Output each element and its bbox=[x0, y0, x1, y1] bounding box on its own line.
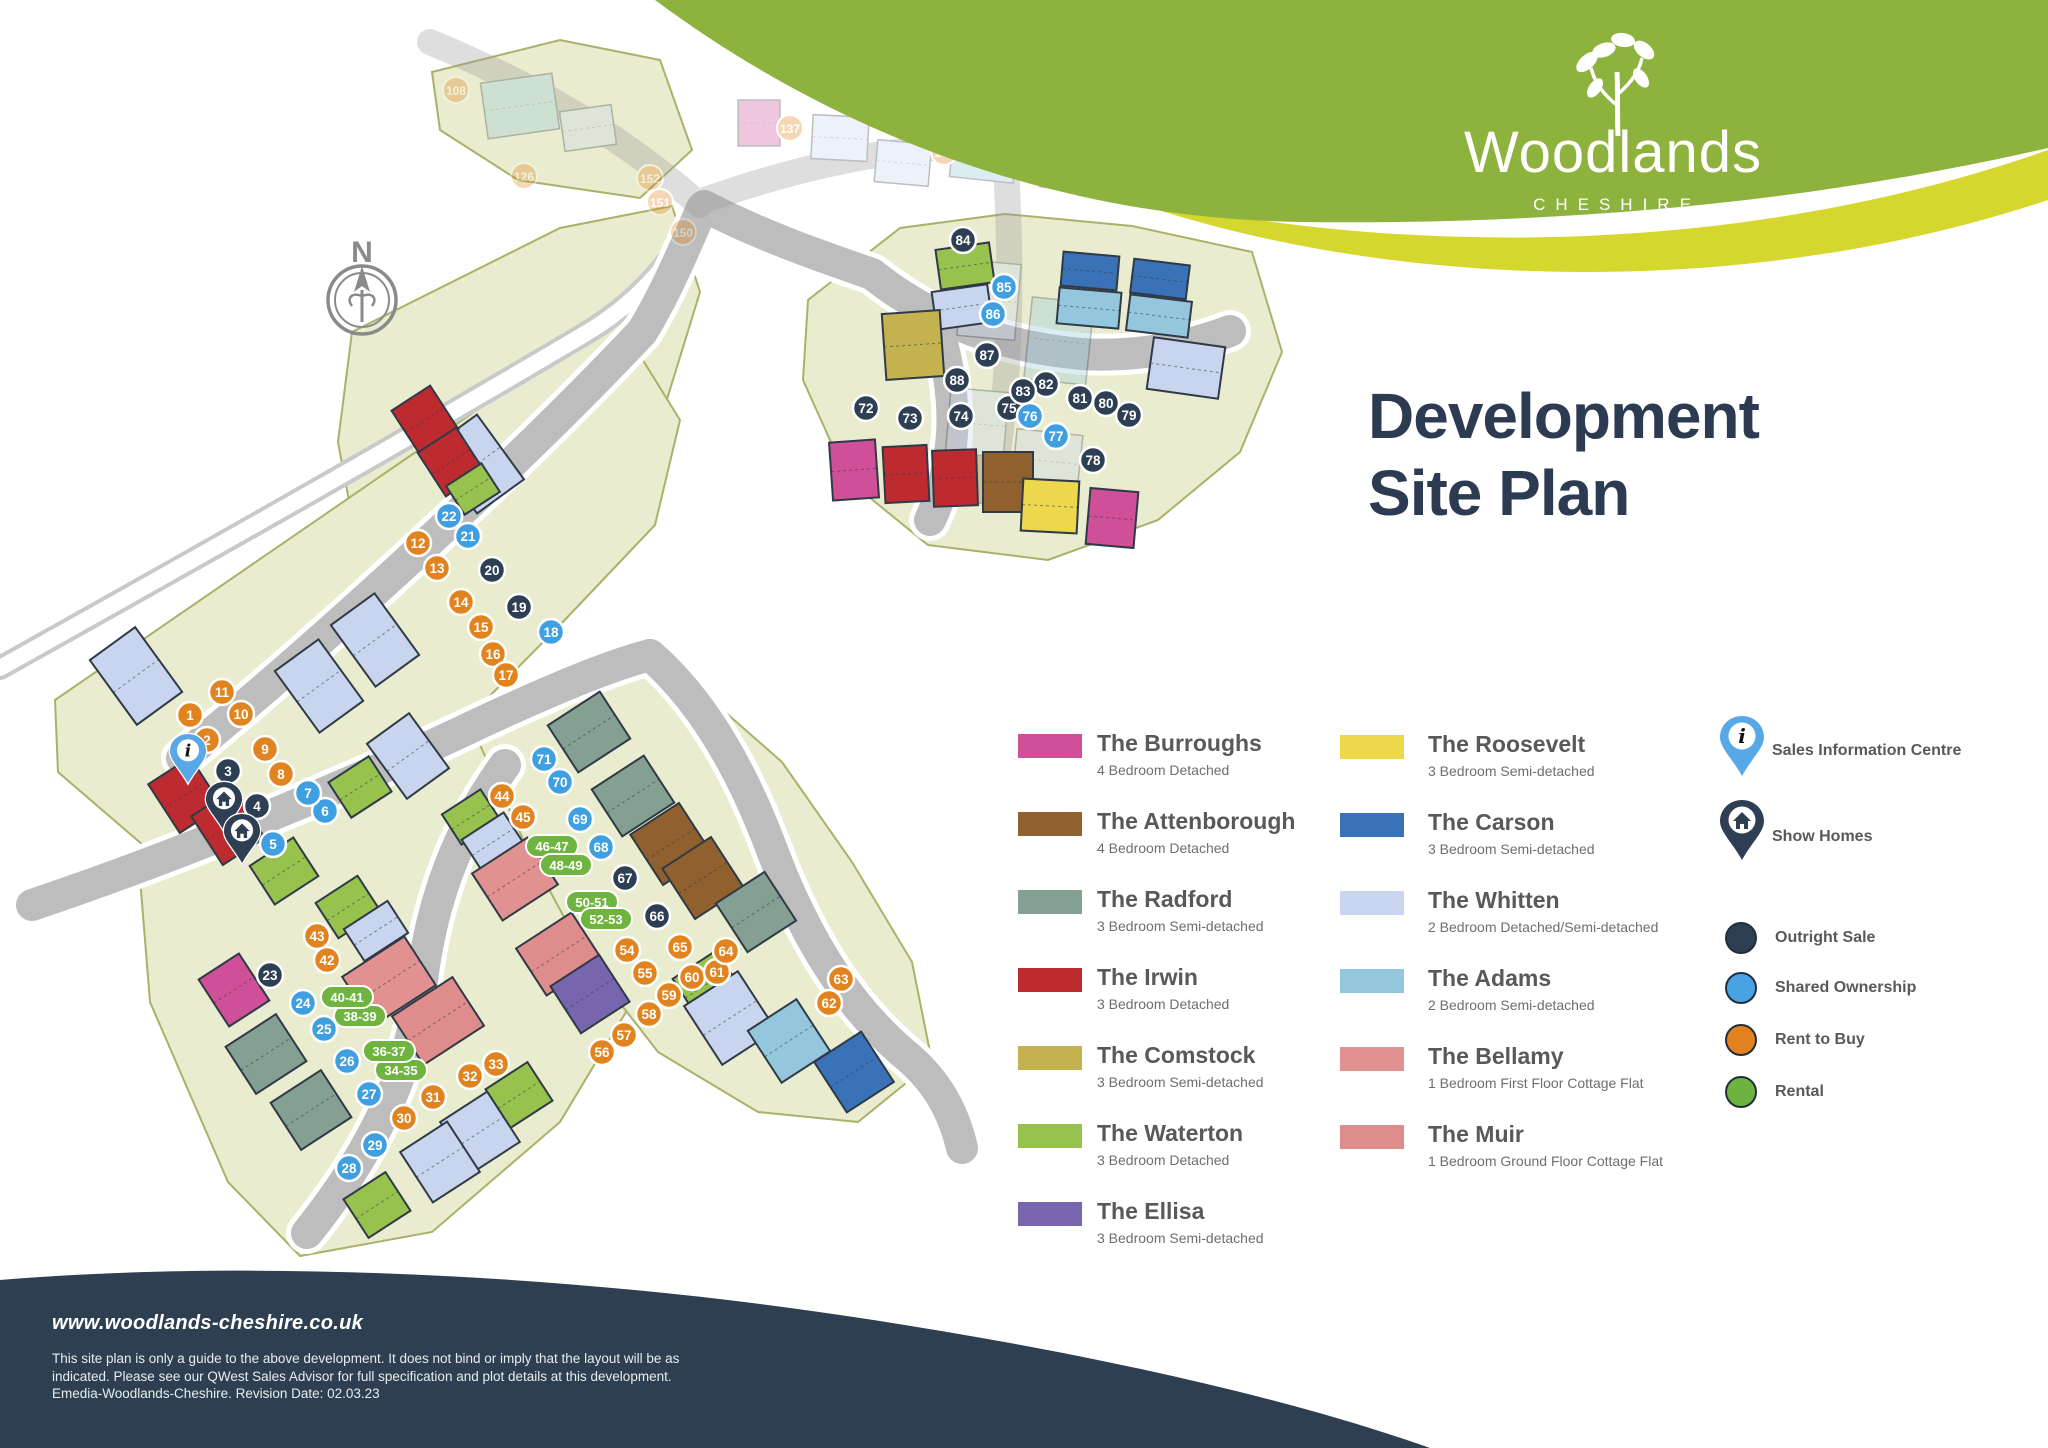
house-footprint-burroughs bbox=[829, 439, 879, 500]
house-footprint-whitten bbox=[1147, 337, 1226, 399]
disclaimer-line: Emedia-Woodlands-Cheshire. Revision Date… bbox=[52, 1385, 679, 1403]
svg-text:16: 16 bbox=[485, 647, 501, 662]
svg-text:67: 67 bbox=[617, 871, 632, 886]
house-footprint-irwin bbox=[883, 445, 930, 503]
plot-marker-14[interactable]: 14 bbox=[448, 589, 474, 615]
svg-text:81: 81 bbox=[1072, 391, 1088, 406]
sales-info-label: Sales Information Centre bbox=[1772, 742, 1961, 760]
rental-dot bbox=[1725, 1076, 1757, 1108]
plot-marker-13[interactable]: 13 bbox=[424, 555, 450, 581]
svg-text:3: 3 bbox=[224, 764, 232, 779]
plot-marker-72[interactable]: 72 bbox=[853, 395, 879, 421]
svg-text:5: 5 bbox=[269, 837, 277, 852]
svg-text:13: 13 bbox=[429, 561, 445, 576]
disclaimer-line: This site plan is only a guide to the ab… bbox=[52, 1350, 679, 1368]
svg-text:61: 61 bbox=[709, 965, 725, 980]
svg-text:32: 32 bbox=[462, 1069, 477, 1084]
plot-marker-31[interactable]: 31 bbox=[420, 1084, 446, 1110]
svg-text:56: 56 bbox=[594, 1045, 610, 1060]
plot-marker-27[interactable]: 27 bbox=[356, 1081, 382, 1107]
rental-label: Rental bbox=[1775, 1083, 1824, 1101]
svg-text:77: 77 bbox=[1048, 429, 1063, 444]
svg-text:36-37: 36-37 bbox=[372, 1044, 405, 1059]
plot-marker-87[interactable]: 87 bbox=[974, 342, 1000, 368]
plot-marker-64[interactable]: 64 bbox=[713, 938, 739, 964]
svg-text:25: 25 bbox=[316, 1022, 332, 1037]
plot-marker-24[interactable]: 24 bbox=[290, 990, 316, 1016]
svg-text:30: 30 bbox=[396, 1111, 411, 1126]
svg-text:34-35: 34-35 bbox=[384, 1063, 417, 1078]
plot-marker-20[interactable]: 20 bbox=[479, 557, 505, 583]
plot-marker-17[interactable]: 17 bbox=[493, 662, 519, 688]
plot-marker-8[interactable]: 8 bbox=[268, 761, 294, 787]
svg-text:59: 59 bbox=[661, 988, 676, 1003]
svg-text:63: 63 bbox=[833, 972, 849, 987]
plot-marker-63[interactable]: 63 bbox=[828, 966, 854, 992]
plot-marker-74[interactable]: 74 bbox=[948, 403, 974, 429]
svg-text:75: 75 bbox=[1001, 401, 1017, 416]
svg-text:54: 54 bbox=[619, 943, 635, 958]
svg-text:i: i bbox=[1738, 724, 1746, 748]
svg-text:43: 43 bbox=[309, 929, 325, 944]
plot-marker-12[interactable]: 12 bbox=[405, 530, 431, 556]
plot-marker-65[interactable]: 65 bbox=[667, 934, 693, 960]
plot-marker-69[interactable]: 69 bbox=[567, 806, 593, 832]
plot-marker-22[interactable]: 22 bbox=[436, 503, 462, 529]
svg-text:28: 28 bbox=[341, 1161, 357, 1176]
shared-ownership-label: Shared Ownership bbox=[1775, 979, 1916, 997]
plot-marker-18[interactable]: 18 bbox=[538, 619, 564, 645]
svg-text:1: 1 bbox=[186, 708, 194, 723]
svg-text:87: 87 bbox=[979, 348, 994, 363]
plot-marker-25[interactable]: 25 bbox=[311, 1016, 337, 1042]
svg-text:66: 66 bbox=[649, 909, 665, 924]
plot-marker-57[interactable]: 57 bbox=[611, 1022, 637, 1048]
svg-text:10: 10 bbox=[233, 707, 248, 722]
plot-marker-28[interactable]: 28 bbox=[336, 1155, 362, 1181]
svg-text:74: 74 bbox=[953, 409, 969, 424]
page-title-line2: Site Plan bbox=[1368, 455, 1759, 532]
plot-marker-62[interactable]: 62 bbox=[816, 990, 842, 1016]
plot-marker-71[interactable]: 71 bbox=[531, 746, 557, 772]
svg-text:48-49: 48-49 bbox=[549, 858, 582, 873]
brand-region: CHESHIRE bbox=[1533, 195, 1701, 214]
banner-green-blob bbox=[655, 0, 2048, 222]
plot-marker-73[interactable]: 73 bbox=[897, 405, 923, 431]
svg-text:73: 73 bbox=[902, 411, 918, 426]
plot-marker-15[interactable]: 15 bbox=[468, 614, 494, 640]
show-homes-label: Show Homes bbox=[1772, 828, 1872, 846]
outright-sale-dot bbox=[1725, 922, 1757, 954]
svg-text:26: 26 bbox=[339, 1054, 355, 1069]
svg-text:12: 12 bbox=[410, 536, 425, 551]
plot-marker-7[interactable]: 7 bbox=[295, 780, 321, 806]
plot-marker-42[interactable]: 42 bbox=[314, 947, 340, 973]
plot-marker-83[interactable]: 83 bbox=[1010, 378, 1036, 404]
plot-marker-67[interactable]: 67 bbox=[612, 865, 638, 891]
plot-marker-19[interactable]: 19 bbox=[506, 594, 532, 620]
svg-text:4: 4 bbox=[253, 799, 261, 814]
svg-text:65: 65 bbox=[672, 940, 688, 955]
svg-text:76: 76 bbox=[1022, 409, 1038, 424]
svg-text:79: 79 bbox=[1121, 408, 1136, 423]
plot-marker-66[interactable]: 66 bbox=[644, 903, 670, 929]
plot-marker-55[interactable]: 55 bbox=[632, 960, 658, 986]
rent-to-buy-dot bbox=[1725, 1024, 1757, 1056]
plot-marker-3[interactable]: 3 bbox=[215, 758, 241, 784]
footer-website-link[interactable]: www.woodlands-cheshire.co.uk bbox=[52, 1312, 363, 1335]
svg-text:14: 14 bbox=[453, 595, 469, 610]
plot-marker-33[interactable]: 33 bbox=[483, 1051, 509, 1077]
svg-text:i: i bbox=[185, 741, 191, 761]
svg-text:18: 18 bbox=[543, 625, 559, 640]
svg-text:21: 21 bbox=[460, 529, 476, 544]
plot-marker-32[interactable]: 32 bbox=[457, 1063, 483, 1089]
page: 1081261371431501511521234567891011121314… bbox=[0, 0, 2048, 1448]
disclaimer-line: indicated. Please see our QWest Sales Ad… bbox=[52, 1368, 679, 1386]
svg-text:20: 20 bbox=[484, 563, 499, 578]
shared-ownership-dot bbox=[1725, 972, 1757, 1004]
svg-text:7: 7 bbox=[304, 786, 312, 801]
svg-text:42: 42 bbox=[319, 953, 334, 968]
plot-marker-45[interactable]: 45 bbox=[510, 804, 536, 830]
svg-text:23: 23 bbox=[262, 968, 278, 983]
plot-marker-26[interactable]: 26 bbox=[334, 1048, 360, 1074]
svg-text:57: 57 bbox=[616, 1028, 631, 1043]
plot-marker-70[interactable]: 70 bbox=[547, 769, 573, 795]
plot-marker-9[interactable]: 9 bbox=[252, 736, 278, 762]
plot-marker-54[interactable]: 54 bbox=[614, 937, 640, 963]
svg-text:40-41: 40-41 bbox=[330, 990, 363, 1005]
plot-marker-10[interactable]: 10 bbox=[228, 701, 254, 727]
plot-range-pill-40-41[interactable]: 40-41 bbox=[321, 986, 373, 1008]
outright-sale-label: Outright Sale bbox=[1775, 929, 1875, 947]
svg-text:64: 64 bbox=[718, 944, 734, 959]
plot-marker-77[interactable]: 77 bbox=[1043, 423, 1069, 449]
svg-text:70: 70 bbox=[552, 775, 567, 790]
plot-marker-68[interactable]: 68 bbox=[588, 834, 614, 860]
svg-text:22: 22 bbox=[441, 509, 456, 524]
svg-text:46-47: 46-47 bbox=[535, 839, 568, 854]
svg-text:60: 60 bbox=[684, 970, 699, 985]
plot-marker-88[interactable]: 88 bbox=[944, 367, 970, 393]
svg-text:44: 44 bbox=[494, 789, 510, 804]
svg-text:78: 78 bbox=[1085, 453, 1101, 468]
svg-text:6: 6 bbox=[321, 804, 329, 819]
plot-marker-11[interactable]: 11 bbox=[209, 679, 235, 705]
page-title: Development Site Plan bbox=[1368, 378, 1759, 532]
svg-text:72: 72 bbox=[858, 401, 873, 416]
plot-marker-29[interactable]: 29 bbox=[362, 1132, 388, 1158]
svg-text:9: 9 bbox=[261, 742, 269, 757]
plot-marker-5[interactable]: 5 bbox=[260, 831, 286, 857]
plot-marker-1[interactable]: 1 bbox=[177, 702, 203, 728]
plot-marker-76[interactable]: 76 bbox=[1017, 403, 1043, 429]
svg-text:58: 58 bbox=[641, 1007, 657, 1022]
plot-marker-56[interactable]: 56 bbox=[589, 1039, 615, 1065]
svg-text:68: 68 bbox=[593, 840, 609, 855]
page-title-line1: Development bbox=[1368, 378, 1759, 455]
plot-marker-23[interactable]: 23 bbox=[257, 962, 283, 988]
show-homes-pin-icon bbox=[1712, 796, 1772, 880]
plot-marker-81[interactable]: 81 bbox=[1067, 385, 1093, 411]
sales-info-pin-icon: i bbox=[1712, 712, 1772, 796]
brand-banner: Woodlands CHESHIRE bbox=[0, 0, 2048, 330]
svg-text:33: 33 bbox=[488, 1057, 504, 1072]
footer-disclaimer: This site plan is only a guide to the ab… bbox=[52, 1350, 679, 1403]
svg-text:82: 82 bbox=[1038, 377, 1053, 392]
svg-text:38-39: 38-39 bbox=[343, 1009, 376, 1024]
plot-range-pill-48-49[interactable]: 48-49 bbox=[540, 854, 592, 876]
plot-marker-78[interactable]: 78 bbox=[1080, 447, 1106, 473]
svg-text:88: 88 bbox=[949, 373, 965, 388]
svg-text:8: 8 bbox=[277, 767, 285, 782]
svg-text:24: 24 bbox=[295, 996, 311, 1011]
svg-text:62: 62 bbox=[821, 996, 836, 1011]
svg-text:69: 69 bbox=[572, 812, 587, 827]
svg-text:15: 15 bbox=[473, 620, 489, 635]
house-footprint-irwin bbox=[932, 449, 978, 507]
plot-marker-59[interactable]: 59 bbox=[656, 982, 682, 1008]
rent-to-buy-label: Rent to Buy bbox=[1775, 1031, 1865, 1049]
svg-text:27: 27 bbox=[361, 1087, 376, 1102]
plot-marker-58[interactable]: 58 bbox=[636, 1001, 662, 1027]
plot-range-pill-52-53[interactable]: 52-53 bbox=[580, 908, 632, 930]
svg-text:52-53: 52-53 bbox=[589, 912, 622, 927]
svg-text:19: 19 bbox=[511, 600, 526, 615]
plot-marker-44[interactable]: 44 bbox=[489, 783, 515, 809]
plot-marker-21[interactable]: 21 bbox=[455, 523, 481, 549]
svg-text:71: 71 bbox=[536, 752, 552, 767]
svg-text:31: 31 bbox=[425, 1090, 441, 1105]
svg-text:45: 45 bbox=[515, 810, 531, 825]
plot-marker-30[interactable]: 30 bbox=[391, 1105, 417, 1131]
plot-range-pill-36-37[interactable]: 36-37 bbox=[363, 1040, 415, 1062]
house-footprint-roosevelt bbox=[1021, 479, 1080, 534]
svg-text:11: 11 bbox=[215, 685, 230, 700]
svg-text:80: 80 bbox=[1098, 396, 1113, 411]
plot-marker-60[interactable]: 60 bbox=[679, 964, 705, 990]
svg-text:55: 55 bbox=[637, 966, 653, 981]
plot-marker-80[interactable]: 80 bbox=[1093, 390, 1119, 416]
svg-text:83: 83 bbox=[1015, 384, 1031, 399]
house-footprint-burroughs bbox=[1086, 488, 1139, 548]
svg-text:29: 29 bbox=[367, 1138, 382, 1153]
plot-marker-43[interactable]: 43 bbox=[304, 923, 330, 949]
svg-text:17: 17 bbox=[498, 668, 513, 683]
brand-name: Woodlands bbox=[1464, 120, 1762, 185]
